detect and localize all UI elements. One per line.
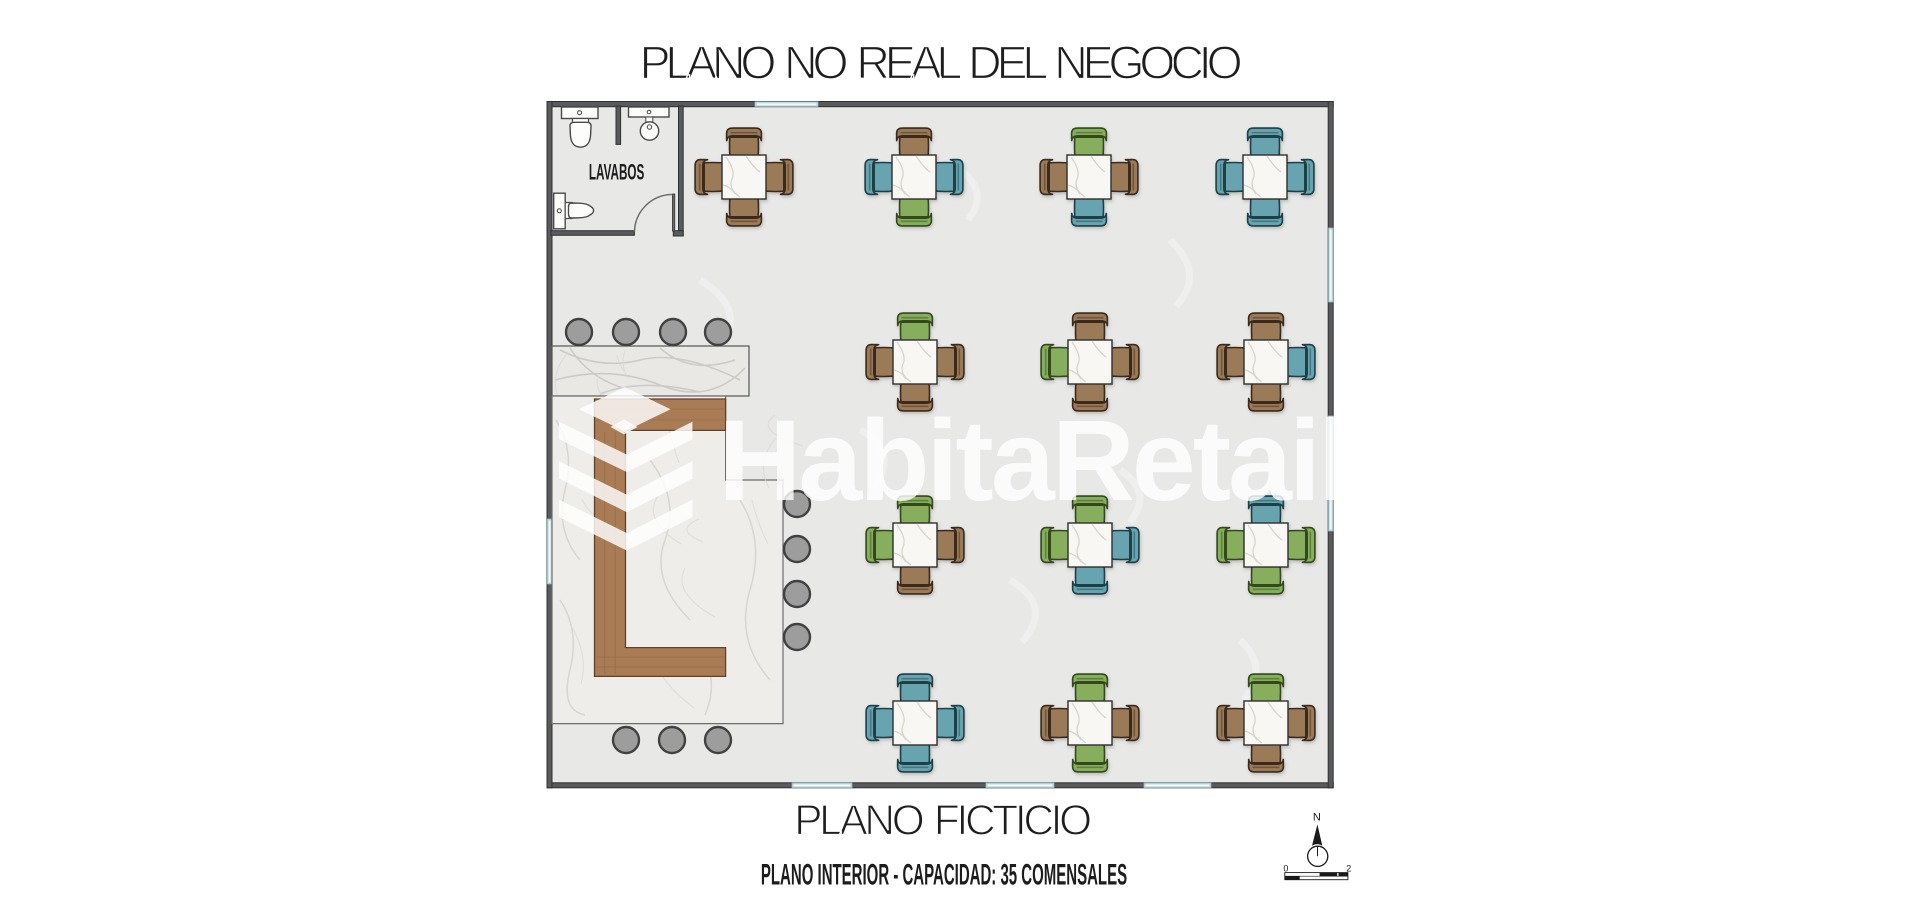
svg-text:0: 0 <box>1283 864 1288 874</box>
svg-text:HabitaRetail: HabitaRetail <box>718 397 1347 525</box>
svg-text:N: N <box>1313 812 1321 824</box>
svg-text:PLANO FICTICIO: PLANO FICTICIO <box>794 797 1090 844</box>
svg-text:LAVABOS: LAVABOS <box>589 160 644 185</box>
svg-text:2: 2 <box>1346 864 1351 874</box>
svg-text:PLANO INTERIOR - CAPACIDAD: 35: PLANO INTERIOR - CAPACIDAD: 35 COMENSALE… <box>761 859 1127 892</box>
svg-text:PLANO NO REAL DEL NEGOCIO: PLANO NO REAL DEL NEGOCIO <box>640 37 1241 89</box>
